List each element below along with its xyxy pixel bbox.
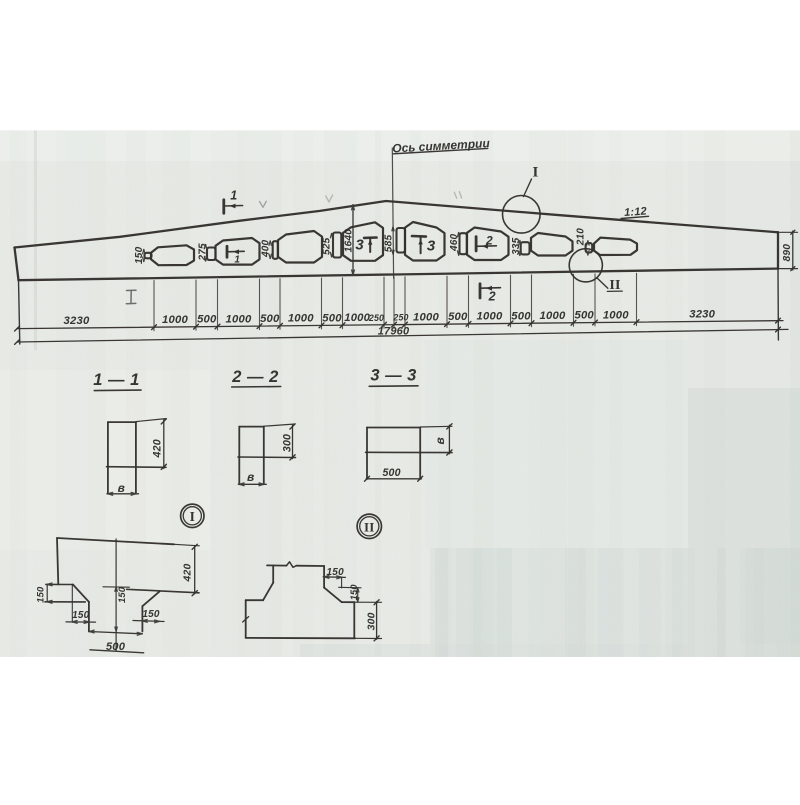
svg-text:1000: 1000 bbox=[162, 314, 188, 326]
svg-text:1640: 1640 bbox=[343, 229, 354, 253]
svg-text:1 — 1: 1 — 1 bbox=[93, 371, 140, 389]
svg-text:3: 3 bbox=[427, 238, 436, 255]
svg-text:в: в bbox=[433, 437, 447, 444]
svg-text:3: 3 bbox=[355, 237, 364, 254]
svg-text:3230: 3230 bbox=[64, 315, 90, 327]
svg-text:150: 150 bbox=[35, 586, 46, 603]
svg-text:460: 460 bbox=[449, 234, 460, 253]
svg-text:3 — 3: 3 — 3 bbox=[370, 367, 417, 385]
svg-text:1000: 1000 bbox=[477, 311, 503, 323]
svg-text:150: 150 bbox=[142, 609, 160, 620]
svg-text:1000: 1000 bbox=[603, 309, 629, 321]
svg-text:1000: 1000 bbox=[226, 313, 252, 325]
svg-text:2: 2 bbox=[485, 234, 493, 248]
svg-text:II: II bbox=[364, 519, 375, 534]
svg-text:420: 420 bbox=[152, 439, 164, 458]
svg-text:I: I bbox=[190, 509, 195, 524]
svg-text:420: 420 bbox=[183, 564, 194, 583]
svg-text:500: 500 bbox=[322, 312, 342, 324]
svg-text:300: 300 bbox=[366, 612, 377, 630]
svg-text:150: 150 bbox=[349, 584, 359, 601]
svg-text:1: 1 bbox=[234, 255, 240, 266]
svg-text:890: 890 bbox=[782, 244, 793, 262]
svg-text:17960: 17960 bbox=[378, 326, 410, 338]
svg-text:1000: 1000 bbox=[540, 310, 566, 322]
svg-text:250: 250 bbox=[392, 313, 408, 323]
svg-text:500: 500 bbox=[574, 310, 594, 322]
svg-text:2: 2 bbox=[488, 289, 496, 303]
svg-text:2 — 2: 2 — 2 bbox=[231, 368, 279, 386]
svg-text:500: 500 bbox=[382, 467, 400, 479]
svg-text:в: в bbox=[118, 481, 125, 495]
svg-text:500: 500 bbox=[511, 310, 531, 322]
svg-text:150: 150 bbox=[72, 610, 90, 621]
svg-text:250: 250 bbox=[368, 313, 384, 323]
svg-text:500: 500 bbox=[448, 311, 468, 323]
svg-text:500: 500 bbox=[260, 313, 280, 325]
svg-text:210: 210 bbox=[576, 228, 587, 247]
svg-text:300: 300 bbox=[282, 434, 294, 452]
svg-text:I: I bbox=[532, 165, 538, 181]
svg-text:3230: 3230 bbox=[689, 308, 715, 320]
svg-text:1000: 1000 bbox=[413, 311, 439, 323]
svg-text:500: 500 bbox=[197, 314, 217, 326]
svg-text:150: 150 bbox=[327, 567, 345, 578]
svg-text:500: 500 bbox=[106, 641, 126, 653]
svg-text:150: 150 bbox=[116, 586, 127, 603]
svg-text:1000: 1000 bbox=[344, 312, 370, 324]
svg-text:в: в bbox=[247, 470, 254, 484]
svg-text:1: 1 bbox=[230, 188, 237, 202]
svg-text:1000: 1000 bbox=[288, 313, 314, 325]
